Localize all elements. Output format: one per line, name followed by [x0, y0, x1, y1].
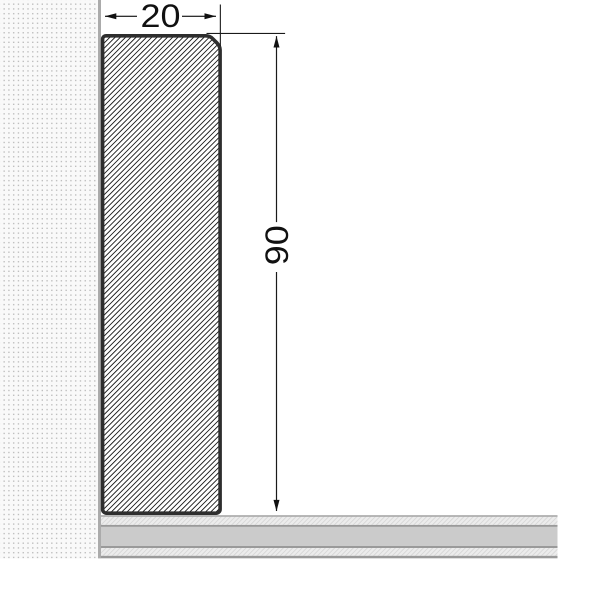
svg-text:20: 20: [141, 0, 181, 34]
svg-text:90: 90: [259, 225, 295, 265]
